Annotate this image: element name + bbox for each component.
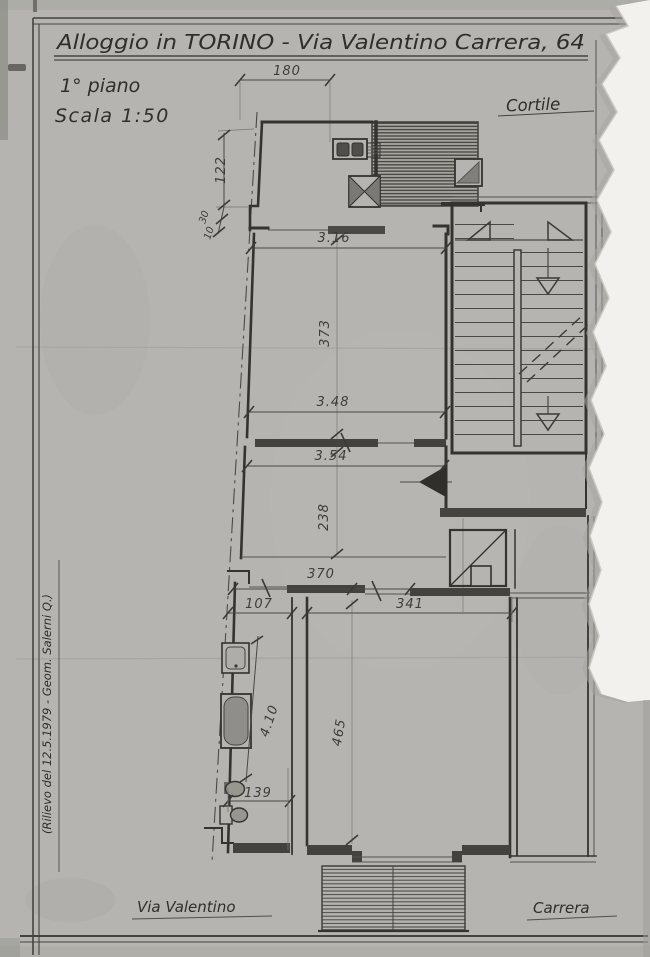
dim-kitchen-side: 122 — [214, 156, 229, 184]
dim-room3-top: 341 — [396, 597, 424, 612]
dim-room2-depth: 238 — [317, 503, 332, 531]
floor-label: 1° piano — [60, 75, 140, 97]
dim-room1-depth: 373 — [318, 319, 333, 347]
street-label-left: Via Valentino — [137, 898, 236, 916]
scale-label: Scala 1:50 — [55, 105, 170, 127]
flue-box — [455, 159, 482, 186]
stove — [349, 176, 380, 207]
dim-room2-top: 3.54 — [315, 449, 348, 464]
dim-room1-bottom: 3.48 — [317, 395, 350, 410]
page-title: Alloggio in TORINO - Via Valentino Carre… — [55, 30, 585, 54]
street-label-right: Carrera — [533, 899, 590, 917]
dim-room1-top: 3.16 — [318, 231, 351, 246]
paper-texture — [0, 0, 650, 957]
bathtub — [221, 694, 251, 748]
bottom-balcony — [318, 866, 469, 931]
dim-hall-width: 370 — [307, 567, 335, 582]
dim-bath-door: 107 — [245, 597, 273, 612]
bidet — [220, 806, 248, 824]
survey-note: (Rilievo del 12.5.1979 - Geom. Salerni Q… — [40, 594, 54, 834]
top-balcony — [372, 122, 482, 206]
dim-wc-width: 139 — [244, 786, 272, 801]
scanned-floor-plan-page: Alloggio in TORINO - Via Valentino Carre… — [0, 0, 650, 957]
staircase — [452, 203, 589, 453]
dim-balcony-width: 180 — [273, 64, 301, 79]
courtyard-label: Cortile — [506, 94, 561, 115]
washbasin — [222, 643, 249, 673]
